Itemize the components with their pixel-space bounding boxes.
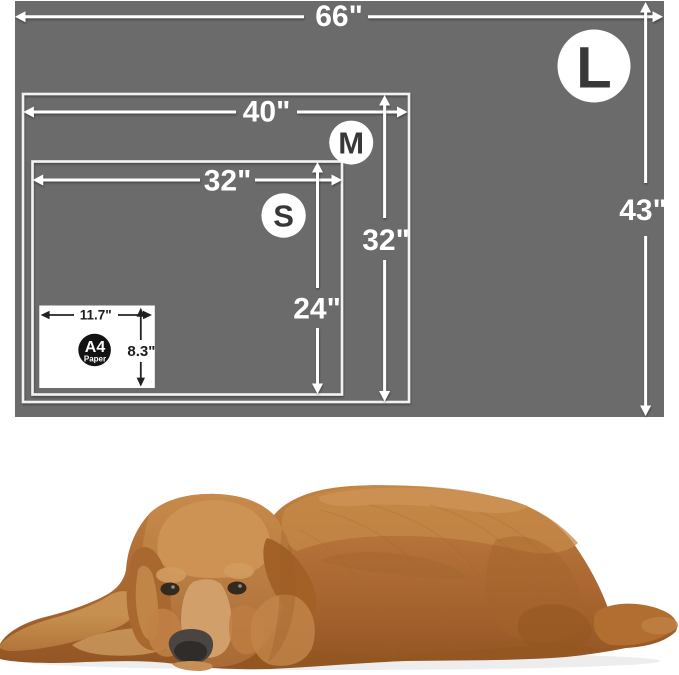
svg-text:A4: A4 <box>85 339 106 356</box>
svg-text:24": 24" <box>293 293 341 326</box>
svg-text:40": 40" <box>243 96 291 129</box>
svg-text:S: S <box>273 199 294 234</box>
svg-text:Paper: Paper <box>84 355 106 364</box>
svg-text:43": 43" <box>619 194 667 227</box>
svg-text:L: L <box>576 36 611 101</box>
svg-text:32": 32" <box>362 224 410 257</box>
svg-text:11.7": 11.7" <box>80 307 112 322</box>
svg-text:32": 32" <box>204 165 252 198</box>
svg-text:66": 66" <box>315 0 363 33</box>
svg-text:8.3": 8.3" <box>127 343 155 360</box>
svg-text:M: M <box>338 126 364 161</box>
